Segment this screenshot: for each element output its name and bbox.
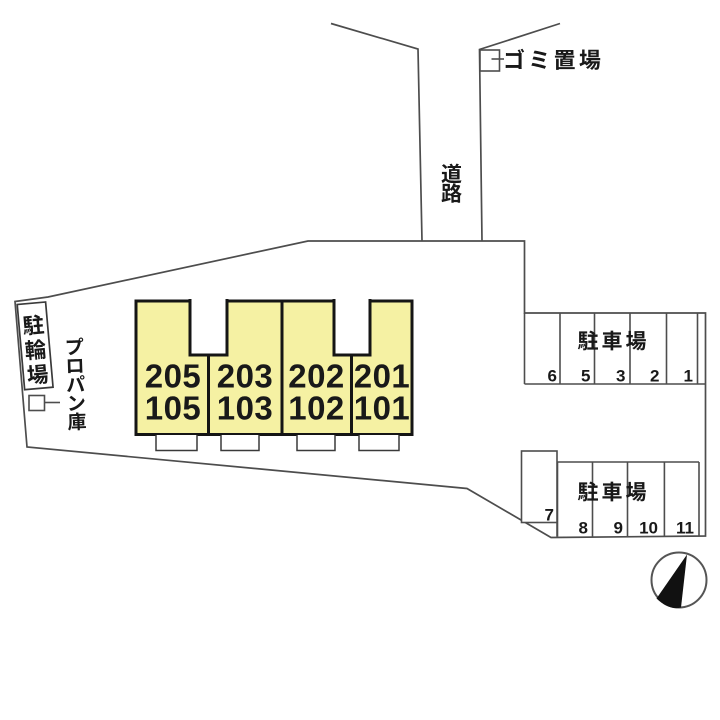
svg-text:8: 8 [579,519,588,538]
svg-text:2: 2 [650,367,659,386]
svg-text:10: 10 [639,519,658,538]
svg-text:3: 3 [616,367,625,386]
svg-text:101: 101 [354,390,411,427]
svg-text:103: 103 [217,390,274,427]
svg-text:1: 1 [684,367,693,386]
svg-text:9: 9 [614,519,623,538]
svg-text:6: 6 [548,367,557,386]
svg-text:102: 102 [288,390,345,427]
svg-text:5: 5 [581,367,590,386]
svg-text:105: 105 [145,390,202,427]
svg-text:7: 7 [545,506,554,525]
svg-text:11: 11 [676,519,694,538]
